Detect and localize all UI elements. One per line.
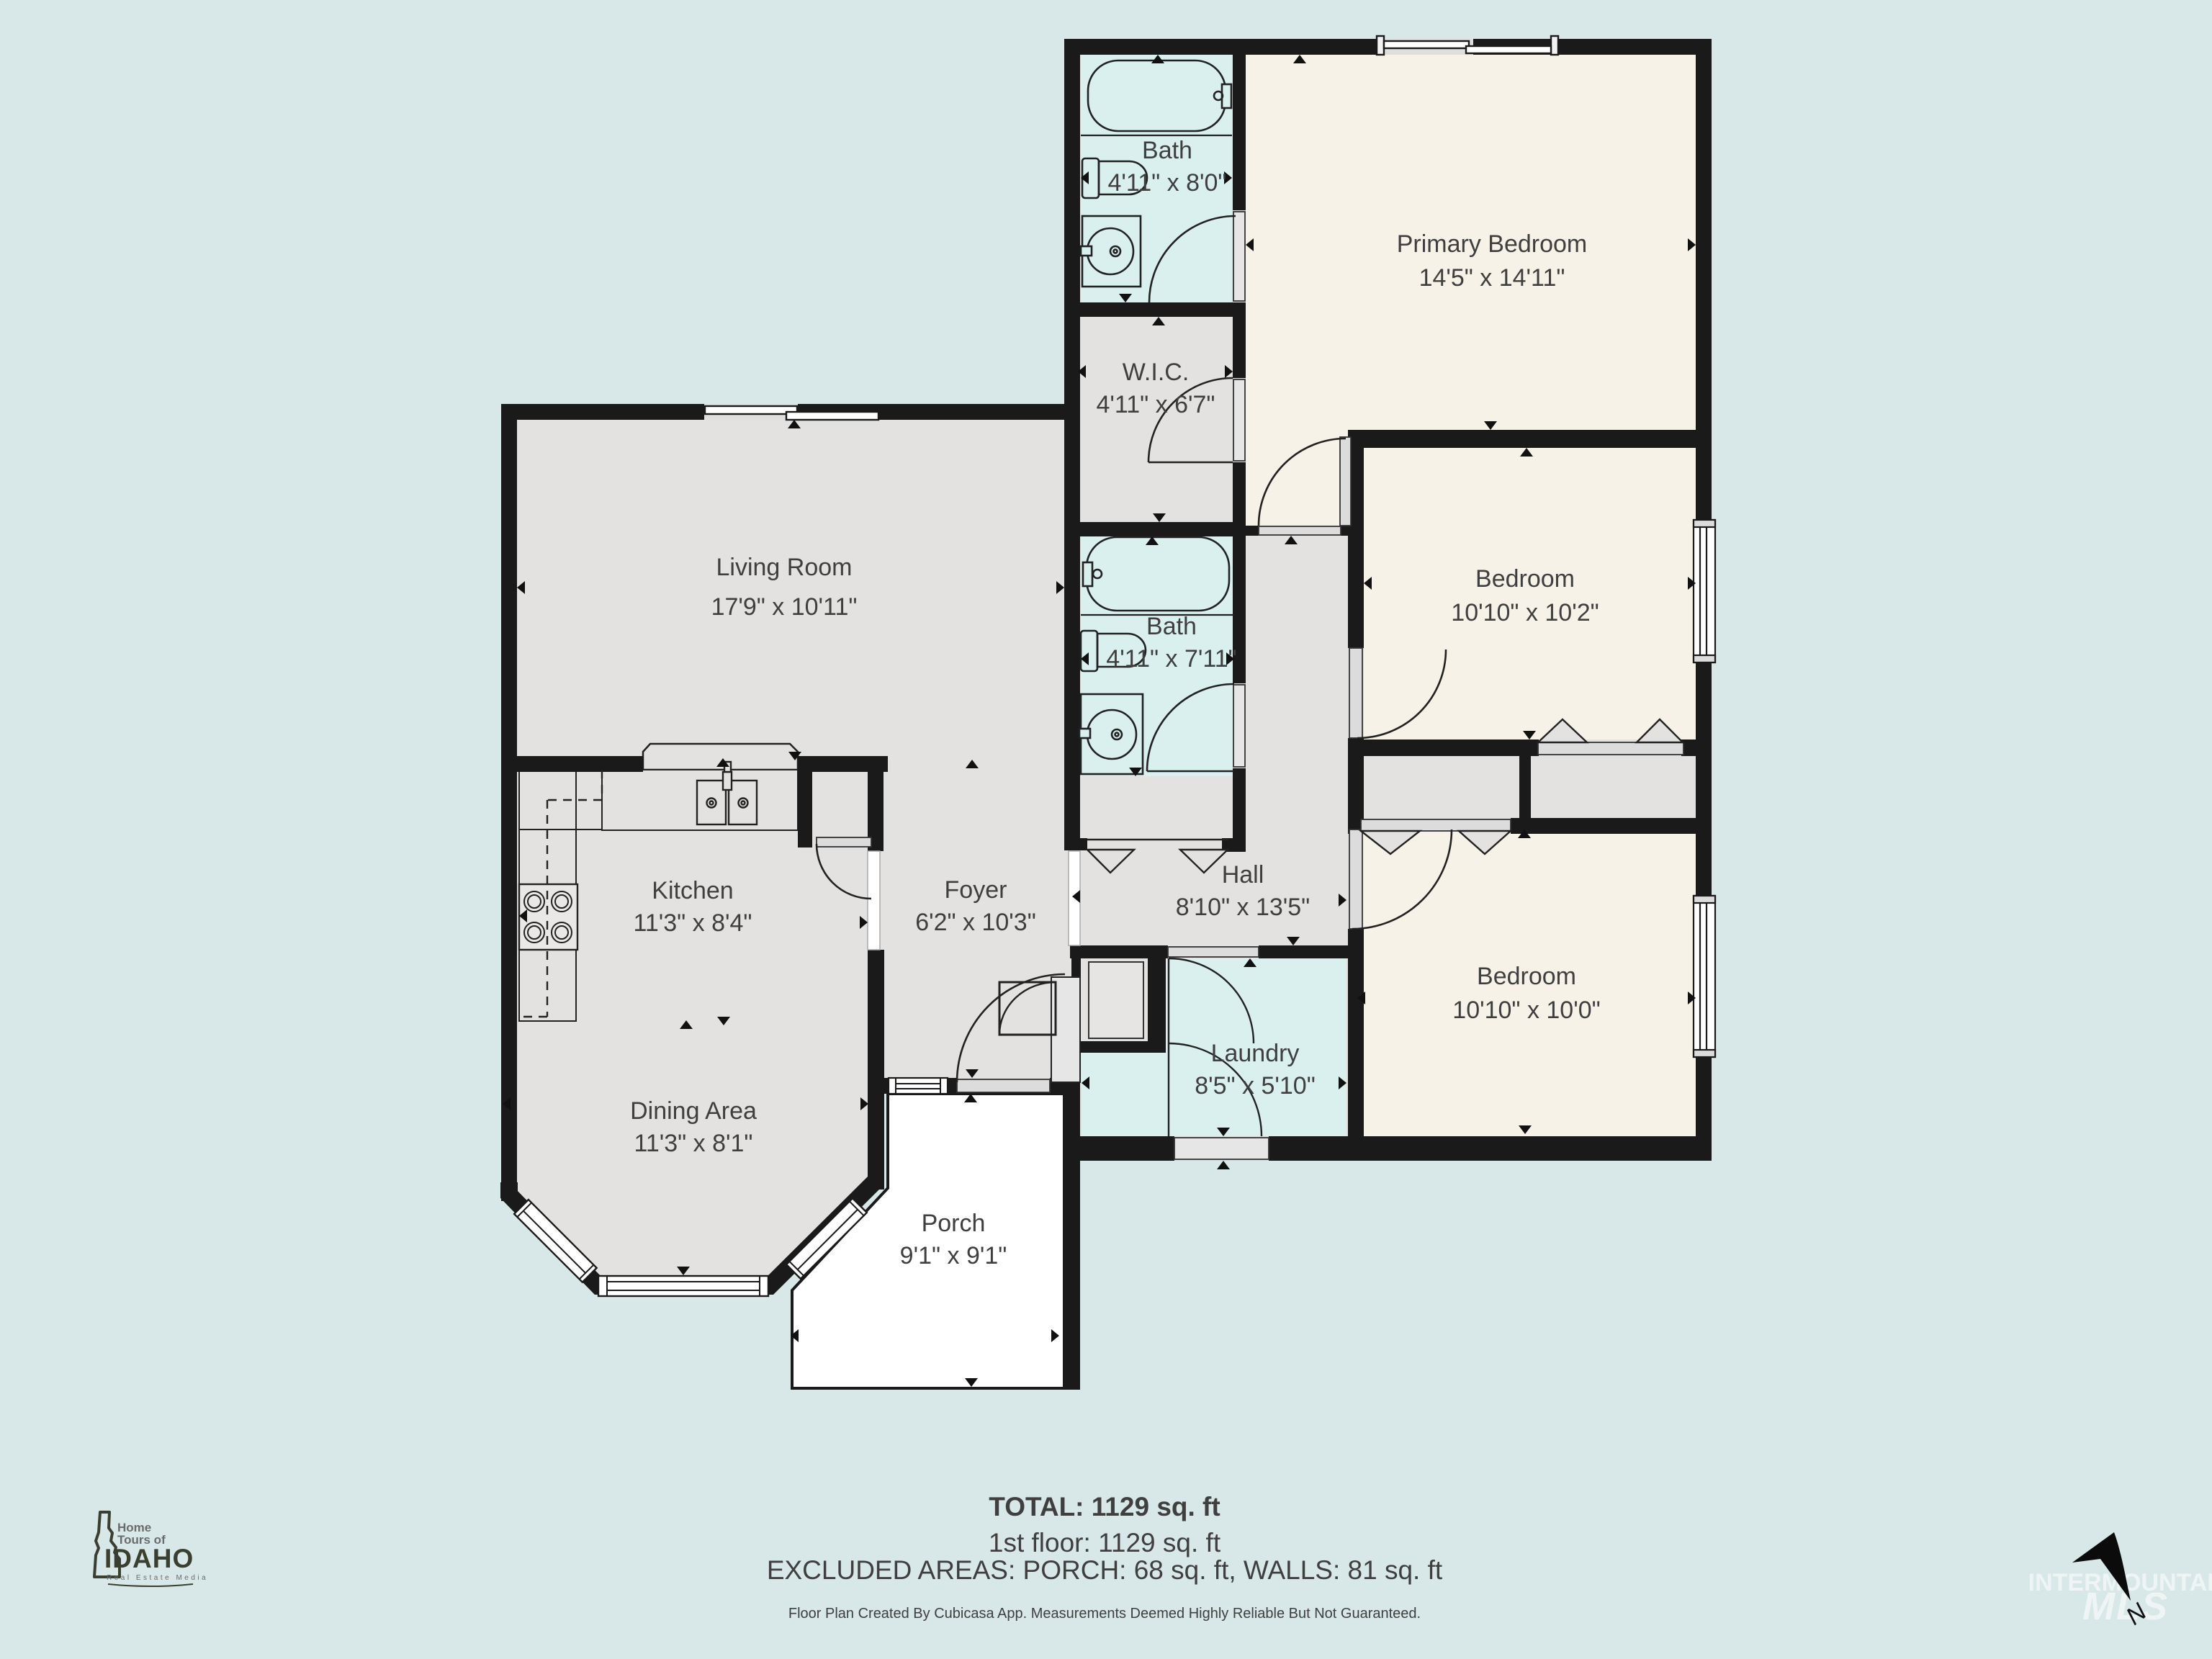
svg-text:IDAHO: IDAHO bbox=[104, 1544, 194, 1573]
svg-text:11'3" x 8'1": 11'3" x 8'1" bbox=[634, 1130, 752, 1157]
svg-text:4'11" x 8'0": 4'11" x 8'0" bbox=[1107, 169, 1226, 197]
svg-text:Dining Area: Dining Area bbox=[630, 1097, 757, 1125]
svg-text:4'11" x 6'7": 4'11" x 6'7" bbox=[1096, 391, 1215, 418]
svg-text:6'2" x 10'3": 6'2" x 10'3" bbox=[915, 909, 1036, 936]
svg-text:EXCLUDED AREAS: PORCH: 68 sq.: EXCLUDED AREAS: PORCH: 68 sq. ft, WALLS:… bbox=[767, 1555, 1443, 1585]
svg-text:4'11" x 7'11": 4'11" x 7'11" bbox=[1106, 645, 1236, 673]
svg-text:W.I.C.: W.I.C. bbox=[1123, 359, 1190, 386]
svg-text:Porch: Porch bbox=[922, 1210, 986, 1237]
svg-text:9'1" x 9'1": 9'1" x 9'1" bbox=[900, 1242, 1007, 1269]
svg-text:Living Room: Living Room bbox=[716, 554, 853, 581]
svg-text:Bath: Bath bbox=[1142, 137, 1192, 164]
svg-text:Bath: Bath bbox=[1146, 613, 1197, 640]
svg-text:Kitchen: Kitchen bbox=[652, 877, 733, 904]
svg-text:Real Estate Media: Real Estate Media bbox=[107, 1574, 208, 1582]
svg-text:Hall: Hall bbox=[1222, 861, 1264, 889]
svg-text:1st floor: 1129 sq. ft: 1st floor: 1129 sq. ft bbox=[989, 1528, 1221, 1557]
svg-text:TOTAL: 1129 sq. ft: TOTAL: 1129 sq. ft bbox=[989, 1492, 1220, 1521]
svg-text:14'5" x 14'11": 14'5" x 14'11" bbox=[1419, 264, 1565, 292]
svg-text:Bedroom: Bedroom bbox=[1475, 565, 1575, 593]
svg-text:Primary Bedroom: Primary Bedroom bbox=[1397, 230, 1588, 258]
svg-text:11'3" x 8'4": 11'3" x 8'4" bbox=[633, 909, 752, 937]
svg-text:17'9" x 10'11": 17'9" x 10'11" bbox=[711, 593, 858, 621]
svg-text:Bedroom: Bedroom bbox=[1477, 963, 1576, 990]
svg-text:8'5" x 5'10": 8'5" x 5'10" bbox=[1195, 1072, 1316, 1100]
svg-text:10'10" x 10'0": 10'10" x 10'0" bbox=[1452, 997, 1600, 1024]
svg-text:Laundry: Laundry bbox=[1211, 1040, 1300, 1067]
svg-text:8'10" x 13'5": 8'10" x 13'5" bbox=[1176, 894, 1310, 921]
svg-text:Foyer: Foyer bbox=[945, 876, 1007, 904]
svg-text:Floor Plan Created By Cubicasa: Floor Plan Created By Cubicasa App. Meas… bbox=[788, 1606, 1421, 1622]
svg-text:10'10" x 10'2": 10'10" x 10'2" bbox=[1451, 599, 1599, 626]
